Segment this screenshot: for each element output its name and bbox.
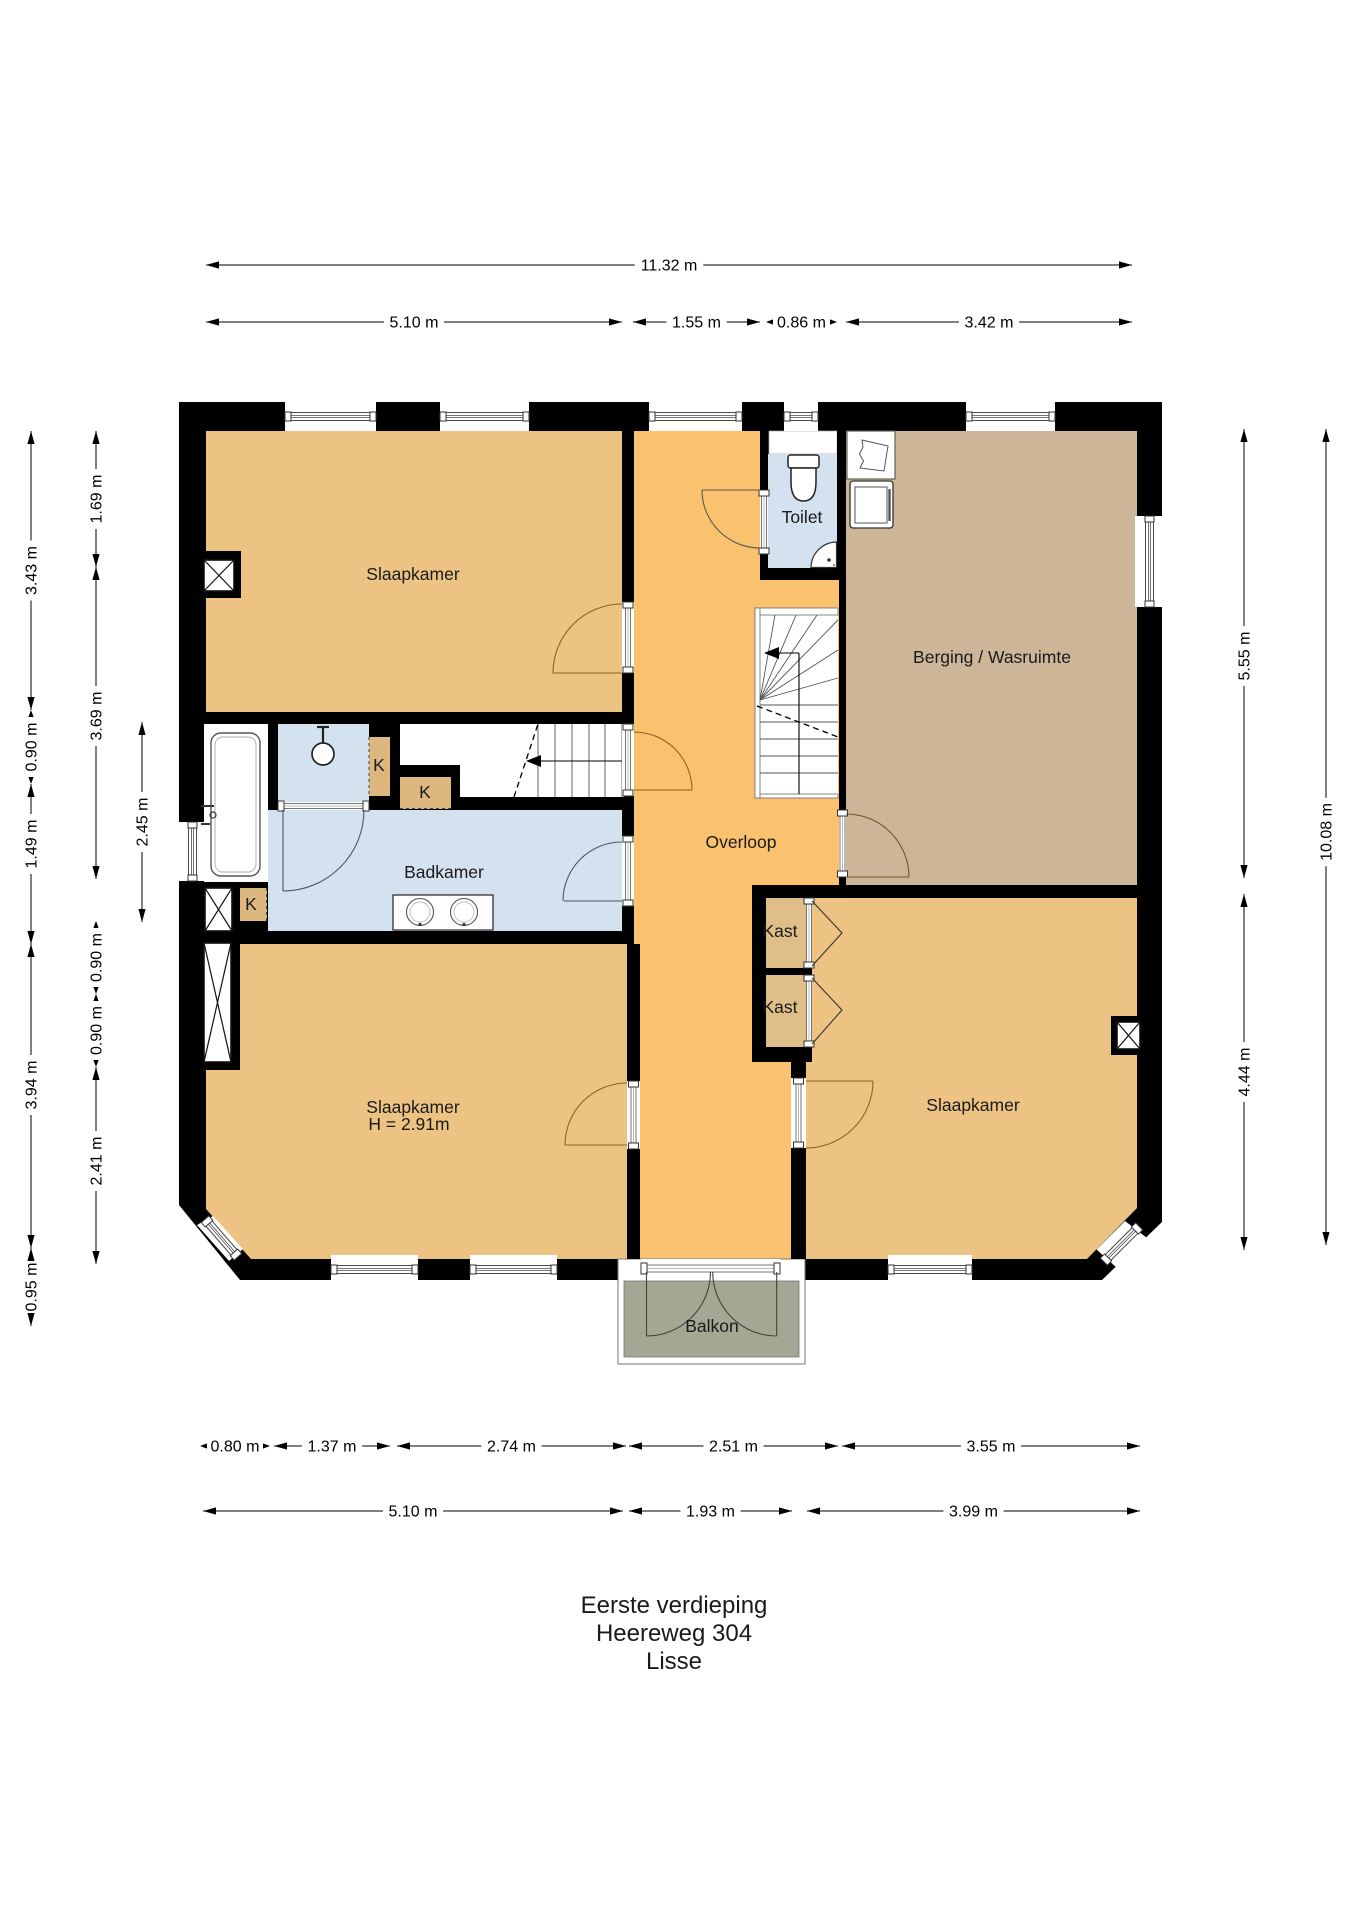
- svg-text:Berging / Wasruimte: Berging / Wasruimte: [913, 647, 1071, 667]
- svg-text:1.55 m: 1.55 m: [672, 315, 721, 332]
- svg-text:Balkon: Balkon: [685, 1316, 739, 1336]
- svg-text:3.55 m: 3.55 m: [967, 1439, 1016, 1456]
- svg-text:2.41 m: 2.41 m: [89, 1137, 106, 1186]
- svg-text:3.99 m: 3.99 m: [949, 1504, 998, 1521]
- svg-text:Kast: Kast: [762, 921, 797, 941]
- svg-text:3.42 m: 3.42 m: [965, 315, 1014, 332]
- svg-text:K: K: [373, 755, 385, 775]
- svg-text:4.44 m: 4.44 m: [1237, 1048, 1254, 1097]
- svg-text:1.93 m: 1.93 m: [686, 1504, 735, 1521]
- svg-text:K: K: [419, 782, 431, 802]
- svg-text:K: K: [245, 894, 257, 914]
- svg-text:0.90 m: 0.90 m: [24, 723, 41, 772]
- svg-text:0.90 m: 0.90 m: [89, 933, 106, 982]
- svg-text:5.55 m: 5.55 m: [1237, 632, 1254, 681]
- svg-text:H = 2.91m: H = 2.91m: [368, 1114, 449, 1134]
- svg-text:1.49 m: 1.49 m: [24, 820, 41, 869]
- svg-text:Toilet: Toilet: [782, 507, 823, 527]
- svg-text:0.95 m: 0.95 m: [24, 1263, 41, 1312]
- svg-text:3.43 m: 3.43 m: [24, 546, 41, 595]
- svg-text:2.74 m: 2.74 m: [487, 1439, 536, 1456]
- svg-text:3.69 m: 3.69 m: [89, 692, 106, 741]
- svg-text:0.90 m: 0.90 m: [89, 1006, 106, 1055]
- svg-text:Slaapkamer: Slaapkamer: [366, 564, 460, 584]
- svg-text:Badkamer: Badkamer: [404, 862, 484, 882]
- svg-text:Slaapkamer: Slaapkamer: [926, 1095, 1020, 1115]
- svg-text:1.37 m: 1.37 m: [308, 1439, 357, 1456]
- svg-text:5.10 m: 5.10 m: [390, 315, 439, 332]
- svg-text:0.80 m: 0.80 m: [211, 1439, 260, 1456]
- svg-text:2.45 m: 2.45 m: [135, 798, 152, 847]
- svg-text:Heereweg 304: Heereweg 304: [596, 1620, 752, 1647]
- svg-text:Overloop: Overloop: [705, 832, 776, 852]
- svg-text:1.69 m: 1.69 m: [89, 475, 106, 524]
- svg-text:5.10 m: 5.10 m: [389, 1504, 438, 1521]
- svg-text:Kast: Kast: [762, 997, 797, 1017]
- svg-text:Lisse: Lisse: [646, 1648, 702, 1675]
- svg-text:2.51 m: 2.51 m: [709, 1439, 758, 1456]
- svg-text:0.86 m: 0.86 m: [777, 315, 826, 332]
- svg-text:3.94 m: 3.94 m: [24, 1061, 41, 1110]
- svg-text:11.32 m: 11.32 m: [641, 258, 698, 275]
- svg-text:Eerste verdieping: Eerste verdieping: [581, 1592, 768, 1619]
- svg-text:10.08 m: 10.08 m: [1319, 803, 1336, 861]
